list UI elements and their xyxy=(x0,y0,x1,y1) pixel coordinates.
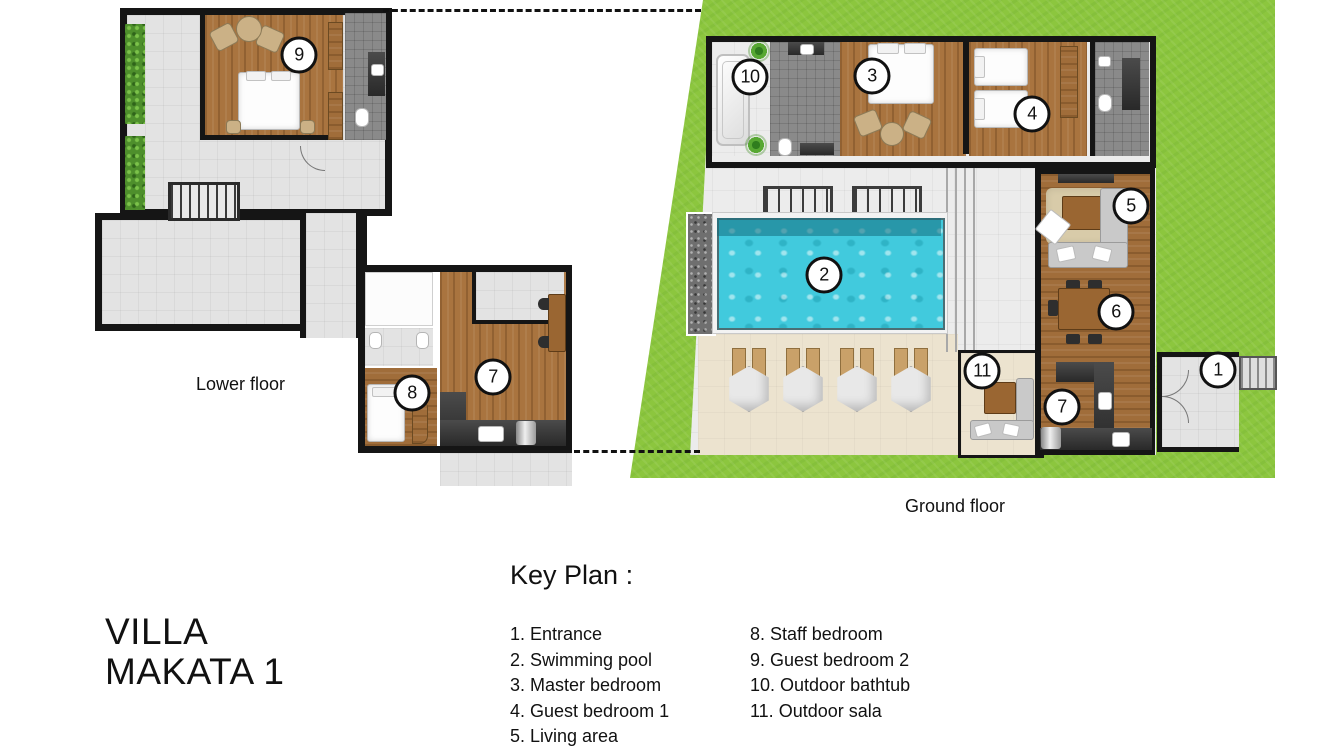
marker-living-area: 5 xyxy=(1113,188,1150,225)
planter-strip xyxy=(125,24,145,124)
stove-icon xyxy=(1112,432,1130,447)
legend-item: 10. Outdoor bathtub xyxy=(750,673,910,699)
round-table-icon xyxy=(236,16,262,42)
legend-item: 5. Living area xyxy=(510,724,669,750)
lower-corridor xyxy=(300,213,362,338)
marker-entrance: 1 xyxy=(1200,352,1237,389)
vanity-counter xyxy=(1122,58,1140,110)
marker-staff-bedroom: 8 xyxy=(394,375,431,412)
desk-icon xyxy=(548,294,566,352)
marker-master-bedroom: 3 xyxy=(854,58,891,95)
marker-outdoor-bathtub: 10 xyxy=(732,59,769,96)
legend-item: 9. Guest bedroom 2 xyxy=(750,648,910,674)
nightstand-icon xyxy=(300,120,315,134)
legend-item: 11. Outdoor sala xyxy=(750,699,910,725)
pool-shelf xyxy=(717,218,941,236)
store-room xyxy=(365,272,433,326)
toilet-icon xyxy=(778,138,792,156)
sala-sofa-icon xyxy=(1016,378,1034,424)
planter-strip xyxy=(125,136,145,210)
toilet-icon xyxy=(416,332,429,349)
terrace-steps xyxy=(946,168,976,352)
dining-chair-icon xyxy=(1088,334,1102,344)
ground-floor-label: Ground floor xyxy=(905,496,1005,517)
sofa-icon xyxy=(1048,242,1128,268)
vanity-counter xyxy=(800,143,834,155)
tv-console-icon xyxy=(1058,174,1114,183)
legend-item: 1. Entrance xyxy=(510,622,669,648)
bed-icon xyxy=(238,72,300,130)
sink-icon xyxy=(1098,56,1111,67)
key-plan-heading: Key Plan : xyxy=(510,560,633,591)
legend-item: 8. Staff bedroom xyxy=(750,622,910,648)
marker-guest-bedroom-1: 4 xyxy=(1014,96,1051,133)
wardrobe-icon xyxy=(328,92,343,140)
villa-title-line1: VILLA xyxy=(105,612,284,652)
toilet-icon xyxy=(355,108,369,127)
round-table-icon xyxy=(880,122,904,146)
legend-item: 3. Master bedroom xyxy=(510,673,669,699)
marker-dining-area: 6 xyxy=(1098,294,1135,331)
floorplan-canvas: 9 10 3 4 5 2 6 11 7 1 8 7 Lower floor Gr… xyxy=(0,0,1342,754)
wardrobe-icon xyxy=(1060,46,1078,118)
key-plan-column-2: 8. Staff bedroom 9. Guest bedroom 2 10. … xyxy=(750,622,910,724)
connector-dashed-top xyxy=(383,9,701,12)
entrance-steps xyxy=(1239,356,1277,390)
lower-floor-label: Lower floor xyxy=(196,374,285,395)
connector-dashed-bottom xyxy=(574,450,700,453)
villa-title-line2: MAKATA 1 xyxy=(105,652,284,692)
stairs-icon xyxy=(168,182,240,221)
sink-icon xyxy=(478,426,504,442)
lower-patio xyxy=(440,453,572,486)
legend-item: 4. Guest bedroom 1 xyxy=(510,699,669,725)
marker-kitchen-lower: 7 xyxy=(475,359,512,396)
marker-swimming-pool: 2 xyxy=(806,257,843,294)
dining-chair-icon xyxy=(1048,300,1058,316)
legend-item: 2. Swimming pool xyxy=(510,648,669,674)
toilet-icon xyxy=(1098,94,1112,112)
single-bed-icon xyxy=(974,48,1028,86)
wardrobe-icon xyxy=(328,22,343,70)
marker-outdoor-sala: 11 xyxy=(964,353,1001,390)
sink-icon xyxy=(1098,392,1112,410)
key-plan-column-1: 1. Entrance 2. Swimming pool 3. Master b… xyxy=(510,622,669,750)
desk-chair-icon xyxy=(538,336,549,348)
plant-icon xyxy=(745,134,767,156)
fridge-icon xyxy=(516,421,536,445)
sink-icon xyxy=(371,64,384,76)
wall-divider xyxy=(963,38,969,154)
nightstand-icon xyxy=(226,120,241,134)
sala-sofa-icon xyxy=(970,420,1034,440)
desk-chair-icon xyxy=(538,298,549,310)
sink-icon xyxy=(800,44,814,55)
marker-guest-bedroom-2: 9 xyxy=(281,37,318,74)
marker-kitchen-ground: 7 xyxy=(1044,389,1081,426)
villa-title: VILLA MAKATA 1 xyxy=(105,612,284,692)
dining-chair-icon xyxy=(1066,334,1080,344)
toilet-icon xyxy=(369,332,382,349)
sun-loungers xyxy=(720,340,950,450)
fridge-icon xyxy=(1041,427,1061,449)
